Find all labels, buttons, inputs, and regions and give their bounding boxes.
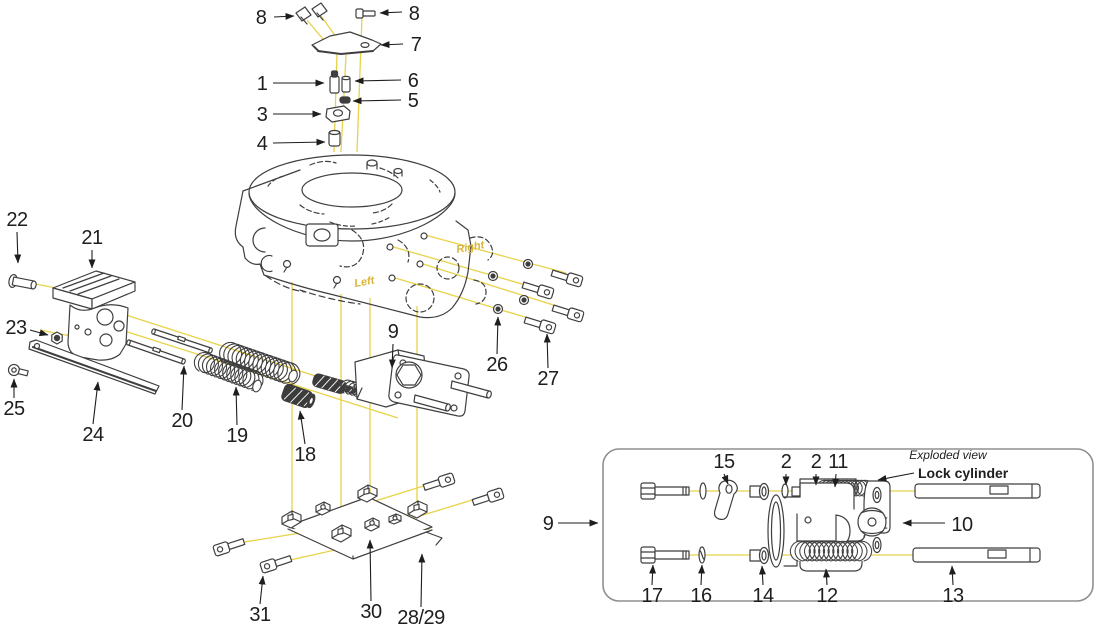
left-side-annotation: Left bbox=[353, 274, 376, 290]
spacer-4 bbox=[329, 131, 340, 147]
part-label-2b: 2 bbox=[811, 451, 822, 473]
exploded-view-caption: Exploded view bbox=[909, 448, 988, 462]
part-label-20: 20 bbox=[171, 410, 193, 432]
screws-31 bbox=[213, 536, 246, 556]
washer-2a bbox=[782, 484, 788, 498]
part-label-21: 21 bbox=[81, 227, 103, 249]
nut-10 bbox=[858, 508, 886, 536]
bolt-top bbox=[641, 483, 689, 499]
rod-13-bottom bbox=[913, 548, 1040, 562]
part-label-9-main: 9 bbox=[388, 321, 399, 343]
exploded-diagram-page: 8 8 7 1 6 5 3 4 22 21 23 25 24 20 19 18 … bbox=[0, 0, 1100, 630]
part-label-28-29: 28/29 bbox=[397, 607, 445, 629]
callout-arrows bbox=[14, 12, 953, 607]
part-label-13: 13 bbox=[942, 585, 964, 607]
nut-23 bbox=[52, 332, 62, 344]
spring-12 bbox=[790, 541, 871, 561]
lock-cylinder-parts bbox=[641, 479, 1040, 571]
part-label-5: 5 bbox=[408, 90, 419, 112]
part-label-12: 12 bbox=[816, 585, 838, 607]
pin-5 bbox=[340, 97, 350, 103]
main-housing bbox=[235, 155, 492, 318]
part-label-16: 16 bbox=[690, 585, 712, 607]
screw-25 bbox=[7, 363, 29, 378]
pin-1 bbox=[330, 71, 339, 93]
bushing-14 bbox=[750, 548, 769, 564]
part-label-25: 25 bbox=[3, 398, 25, 420]
bushing-top bbox=[750, 484, 769, 500]
part-label-1: 1 bbox=[257, 73, 268, 95]
clamp-3 bbox=[326, 106, 350, 122]
part-label-7: 7 bbox=[411, 34, 422, 56]
part-label-22: 22 bbox=[6, 209, 28, 231]
bushing-6 bbox=[342, 76, 350, 92]
base-plate-28-29 bbox=[282, 485, 442, 559]
lock-assembly-9 bbox=[355, 350, 492, 416]
part-label-27: 27 bbox=[537, 368, 559, 390]
annotations: Right Left Exploded view Lock cylinder bbox=[353, 239, 1008, 481]
rod-13-top bbox=[915, 484, 1040, 498]
part-label-15: 15 bbox=[713, 451, 735, 473]
part-label-3: 3 bbox=[257, 104, 268, 126]
part-label-8-left: 8 bbox=[256, 7, 267, 29]
part-label-4: 4 bbox=[257, 133, 268, 155]
cam-lever-15 bbox=[715, 480, 738, 519]
bolt-17 bbox=[641, 547, 689, 563]
part-label-14: 14 bbox=[752, 585, 774, 607]
part-label-18: 18 bbox=[294, 444, 316, 466]
part-label-17: 17 bbox=[641, 585, 663, 607]
part-label-11: 11 bbox=[828, 451, 848, 473]
part-label-24: 24 bbox=[82, 424, 104, 446]
lock-cylinder-caption: Lock cylinder bbox=[918, 465, 1009, 481]
part-label-6: 6 bbox=[408, 70, 419, 92]
part-label-19: 19 bbox=[226, 425, 248, 447]
part-label-30: 30 bbox=[360, 601, 382, 623]
part-label-10: 10 bbox=[951, 514, 973, 536]
part-label-26: 26 bbox=[486, 354, 508, 376]
part-label-23: 23 bbox=[5, 317, 27, 339]
part-label-9-box: 9 bbox=[543, 513, 554, 535]
part-label-8-right: 8 bbox=[409, 3, 420, 25]
cover-plate-7 bbox=[312, 32, 381, 54]
diagram-canvas: 8 8 7 1 6 5 3 4 22 21 23 25 24 20 19 18 … bbox=[0, 0, 1100, 630]
sliding-jaw-21 bbox=[53, 271, 135, 360]
part-label-2a: 2 bbox=[781, 451, 792, 473]
part-label-31: 31 bbox=[249, 604, 271, 626]
washer-top bbox=[700, 483, 706, 499]
right-side-annotation: Right bbox=[455, 239, 486, 256]
bolt-22 bbox=[8, 274, 37, 292]
